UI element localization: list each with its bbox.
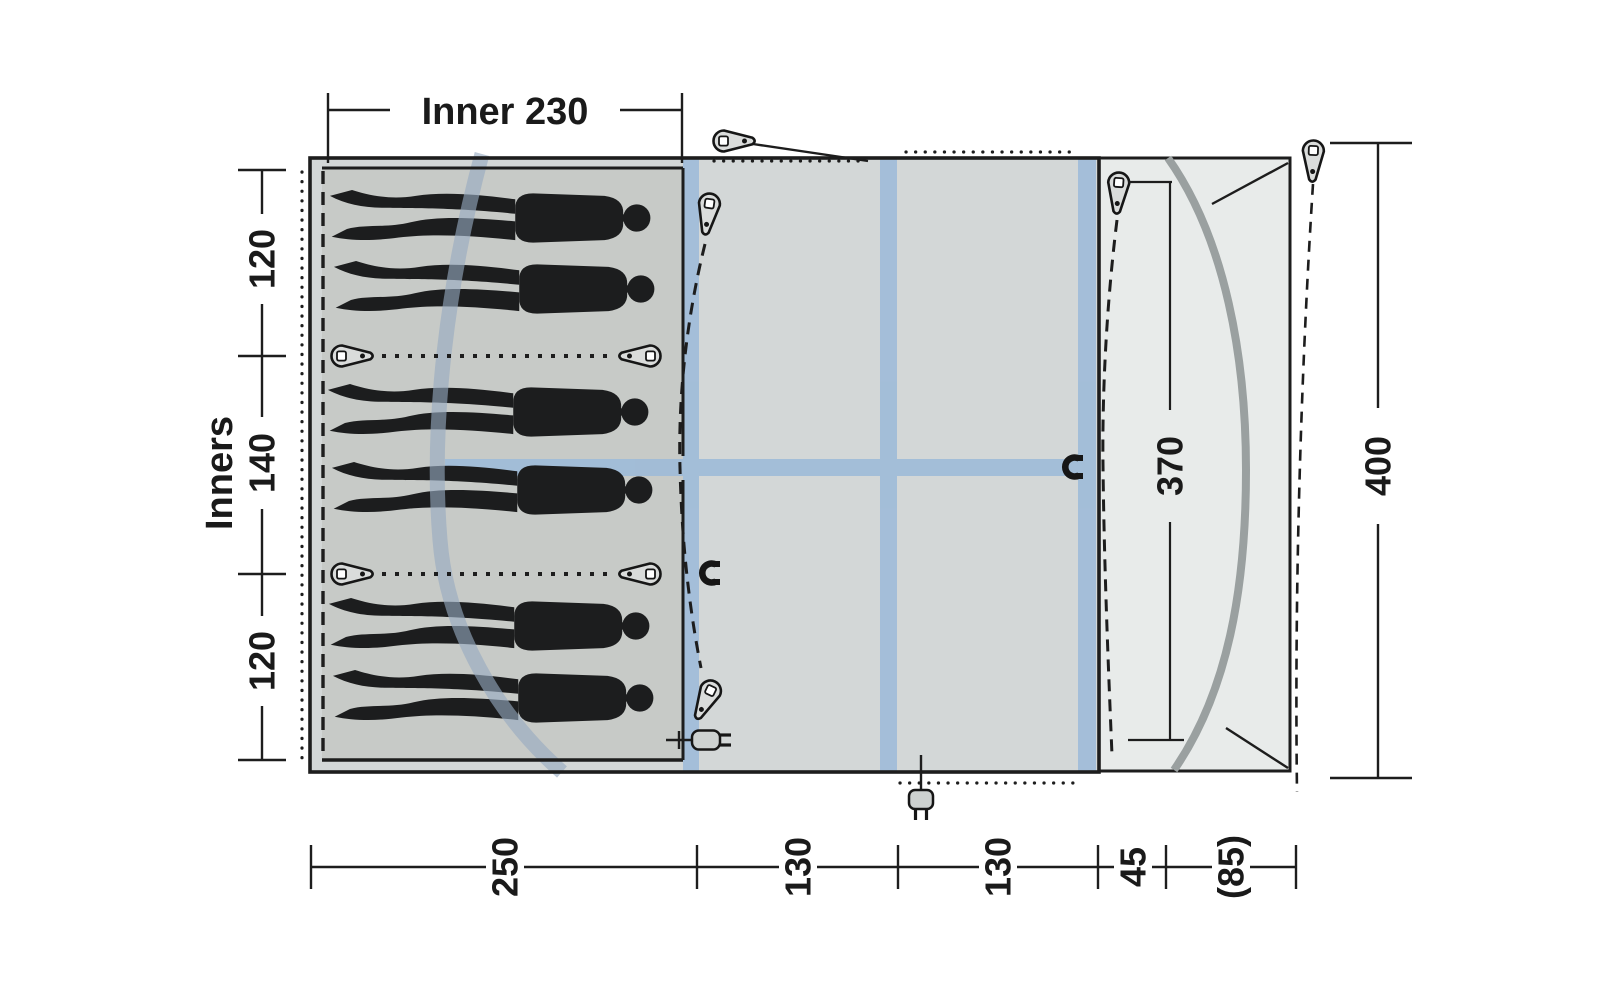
bottom-segment-label: 250 xyxy=(485,837,526,897)
bottom-segment-label: 45 xyxy=(1113,847,1154,887)
tent-peg-icon xyxy=(714,131,755,152)
dimension-left-axis: 120 140 120 Inners xyxy=(199,170,286,760)
dimension-inner-width: Inner 230 xyxy=(328,85,682,163)
tent-peg-icon xyxy=(1302,140,1324,182)
dimension-total-height: 400 xyxy=(1330,143,1412,778)
total-height-label: 400 xyxy=(1358,436,1399,496)
bottom-segment-label: (85) xyxy=(1211,835,1252,899)
inner-width-label: Inner 230 xyxy=(422,91,589,133)
guy-line-right xyxy=(1296,184,1313,792)
tent-floorplan-diagram: Inner 230 120 140 120 Inners 250 130 130… xyxy=(0,0,1600,1000)
left-segment-label: 120 xyxy=(242,631,283,691)
pole-tape-vertical-3 xyxy=(1078,158,1096,772)
dimension-bottom-axis: 250 130 130 45 (85) xyxy=(311,810,1296,924)
left-segment-label: 140 xyxy=(242,433,283,493)
left-segment-label: 120 xyxy=(242,229,283,289)
canopy-depth-label: 370 xyxy=(1150,436,1191,496)
inners-axis-title: Inners xyxy=(199,416,241,530)
bottom-segment-label: 130 xyxy=(978,837,1019,897)
bottom-segment-label: 130 xyxy=(778,837,819,897)
